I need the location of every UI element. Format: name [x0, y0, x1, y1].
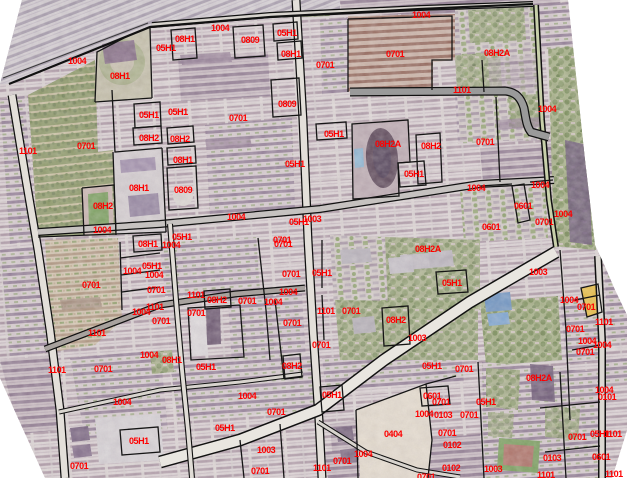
- svg-text:1003: 1003: [303, 214, 322, 224]
- svg-text:0701: 0701: [577, 302, 596, 312]
- svg-text:05H1: 05H1: [312, 268, 332, 278]
- svg-text:08H2: 08H2: [93, 201, 113, 211]
- svg-text:05H1: 05H1: [139, 110, 159, 120]
- svg-text:05H1: 05H1: [215, 423, 235, 433]
- svg-text:0701: 0701: [438, 428, 457, 438]
- svg-text:1003: 1003: [257, 445, 276, 455]
- svg-text:08H1: 08H1: [110, 71, 130, 81]
- svg-text:0103: 0103: [434, 410, 453, 420]
- svg-text:08H2: 08H2: [170, 134, 190, 144]
- svg-text:1003: 1003: [408, 333, 427, 343]
- svg-text:05H1: 05H1: [168, 107, 188, 117]
- svg-text:08H2A: 08H2A: [375, 139, 402, 149]
- svg-text:0701: 0701: [229, 113, 248, 123]
- svg-text:1004: 1004: [554, 209, 573, 219]
- svg-text:08H2: 08H2: [282, 361, 302, 371]
- svg-text:08H1: 08H1: [162, 355, 182, 365]
- svg-text:05H1: 05H1: [422, 361, 442, 371]
- svg-text:1101: 1101: [605, 469, 623, 478]
- svg-text:0601: 0601: [592, 452, 611, 462]
- svg-text:05H1: 05H1: [196, 362, 216, 372]
- svg-text:1004: 1004: [140, 350, 159, 360]
- svg-text:0102: 0102: [443, 440, 462, 450]
- svg-text:1004: 1004: [279, 287, 298, 297]
- svg-text:0701: 0701: [535, 217, 554, 227]
- svg-text:1004: 1004: [211, 23, 230, 33]
- svg-text:05H1: 05H1: [285, 159, 305, 169]
- svg-text:08H1: 08H1: [175, 34, 195, 44]
- svg-text:0809: 0809: [278, 99, 297, 109]
- svg-text:0701: 0701: [94, 364, 113, 374]
- svg-text:1004: 1004: [538, 104, 557, 114]
- svg-text:08H2A: 08H2A: [526, 373, 553, 383]
- svg-text:1004: 1004: [593, 340, 612, 350]
- svg-text:05H1: 05H1: [404, 169, 424, 179]
- svg-text:0701: 0701: [70, 461, 89, 471]
- svg-text:0701: 0701: [342, 306, 361, 316]
- svg-text:0701: 0701: [316, 60, 335, 70]
- svg-text:1004: 1004: [415, 409, 434, 419]
- svg-text:0701: 0701: [576, 347, 595, 357]
- svg-text:1101: 1101: [313, 463, 331, 473]
- svg-text:1101: 1101: [537, 470, 555, 478]
- svg-text:05H1: 05H1: [324, 129, 344, 139]
- svg-text:0809: 0809: [241, 35, 260, 45]
- svg-text:1004: 1004: [531, 180, 550, 190]
- svg-text:1004: 1004: [354, 449, 373, 459]
- svg-text:0601: 0601: [482, 222, 501, 232]
- svg-text:1004: 1004: [412, 10, 431, 20]
- svg-text:0701: 0701: [282, 269, 301, 279]
- svg-text:0701: 0701: [455, 364, 474, 374]
- svg-text:1101: 1101: [88, 328, 106, 338]
- svg-text:1004: 1004: [93, 225, 112, 235]
- svg-text:08H2: 08H2: [386, 315, 406, 325]
- svg-text:0404: 0404: [384, 429, 403, 439]
- svg-text:1101: 1101: [19, 146, 37, 156]
- svg-text:1004: 1004: [560, 295, 579, 305]
- svg-text:05H1: 05H1: [129, 436, 149, 446]
- svg-text:08H2: 08H2: [207, 295, 227, 305]
- svg-text:1101: 1101: [187, 290, 205, 300]
- svg-text:0701: 0701: [267, 407, 286, 417]
- svg-text:0701: 0701: [333, 456, 352, 466]
- svg-text:0701: 0701: [566, 324, 585, 334]
- svg-text:0102: 0102: [442, 463, 461, 473]
- svg-text:0701: 0701: [147, 285, 166, 295]
- svg-text:0701: 0701: [77, 141, 96, 151]
- svg-text:0701: 0701: [251, 466, 270, 476]
- svg-text:1101: 1101: [595, 317, 613, 327]
- svg-text:1004: 1004: [264, 297, 283, 307]
- svg-text:0701: 0701: [274, 239, 293, 249]
- svg-text:0601: 0601: [514, 201, 533, 211]
- svg-text:08H2: 08H2: [139, 133, 159, 143]
- svg-text:1003: 1003: [529, 267, 548, 277]
- svg-text:1004: 1004: [162, 240, 181, 250]
- svg-text:0701: 0701: [283, 318, 302, 328]
- svg-text:1101: 1101: [317, 306, 335, 316]
- svg-text:0701: 0701: [476, 137, 495, 147]
- svg-text:08H1: 08H1: [281, 49, 301, 59]
- svg-text:05H1: 05H1: [156, 43, 176, 53]
- svg-text:0701: 0701: [432, 397, 451, 407]
- svg-text:05H1: 05H1: [476, 397, 496, 407]
- svg-text:08H2A: 08H2A: [484, 48, 511, 58]
- svg-text:1004: 1004: [467, 183, 486, 193]
- svg-text:08H2A: 08H2A: [415, 244, 442, 254]
- svg-text:0101: 0101: [598, 392, 617, 402]
- svg-text:05H1: 05H1: [442, 278, 462, 288]
- svg-text:0701: 0701: [460, 410, 479, 420]
- svg-text:1004: 1004: [68, 56, 87, 66]
- svg-text:0701: 0701: [417, 472, 436, 478]
- svg-text:08H1: 08H1: [173, 155, 193, 165]
- svg-text:0103: 0103: [543, 453, 562, 463]
- svg-text:1004: 1004: [123, 266, 142, 276]
- svg-text:0701: 0701: [238, 296, 257, 306]
- svg-text:0701: 0701: [312, 340, 331, 350]
- svg-text:1004: 1004: [238, 391, 257, 401]
- svg-text:0701: 0701: [152, 316, 171, 326]
- svg-text:0701: 0701: [568, 432, 587, 442]
- svg-text:0701: 0701: [386, 49, 405, 59]
- svg-text:1004: 1004: [145, 270, 164, 280]
- svg-text:1003: 1003: [484, 464, 503, 474]
- svg-text:1101: 1101: [146, 302, 164, 312]
- svg-text:05H1: 05H1: [277, 28, 297, 38]
- svg-text:08H1: 08H1: [129, 183, 149, 193]
- svg-text:1004: 1004: [113, 397, 132, 407]
- svg-text:08H1: 08H1: [138, 239, 158, 249]
- svg-text:0809: 0809: [174, 185, 193, 195]
- svg-text:1101: 1101: [604, 429, 622, 439]
- svg-text:1101: 1101: [48, 365, 66, 375]
- svg-text:0701: 0701: [82, 280, 101, 290]
- svg-text:1101: 1101: [453, 85, 471, 95]
- svg-text:1004: 1004: [227, 212, 246, 222]
- svg-text:05H1: 05H1: [322, 390, 342, 400]
- svg-text:08H2: 08H2: [421, 141, 441, 151]
- svg-text:0701: 0701: [187, 308, 206, 318]
